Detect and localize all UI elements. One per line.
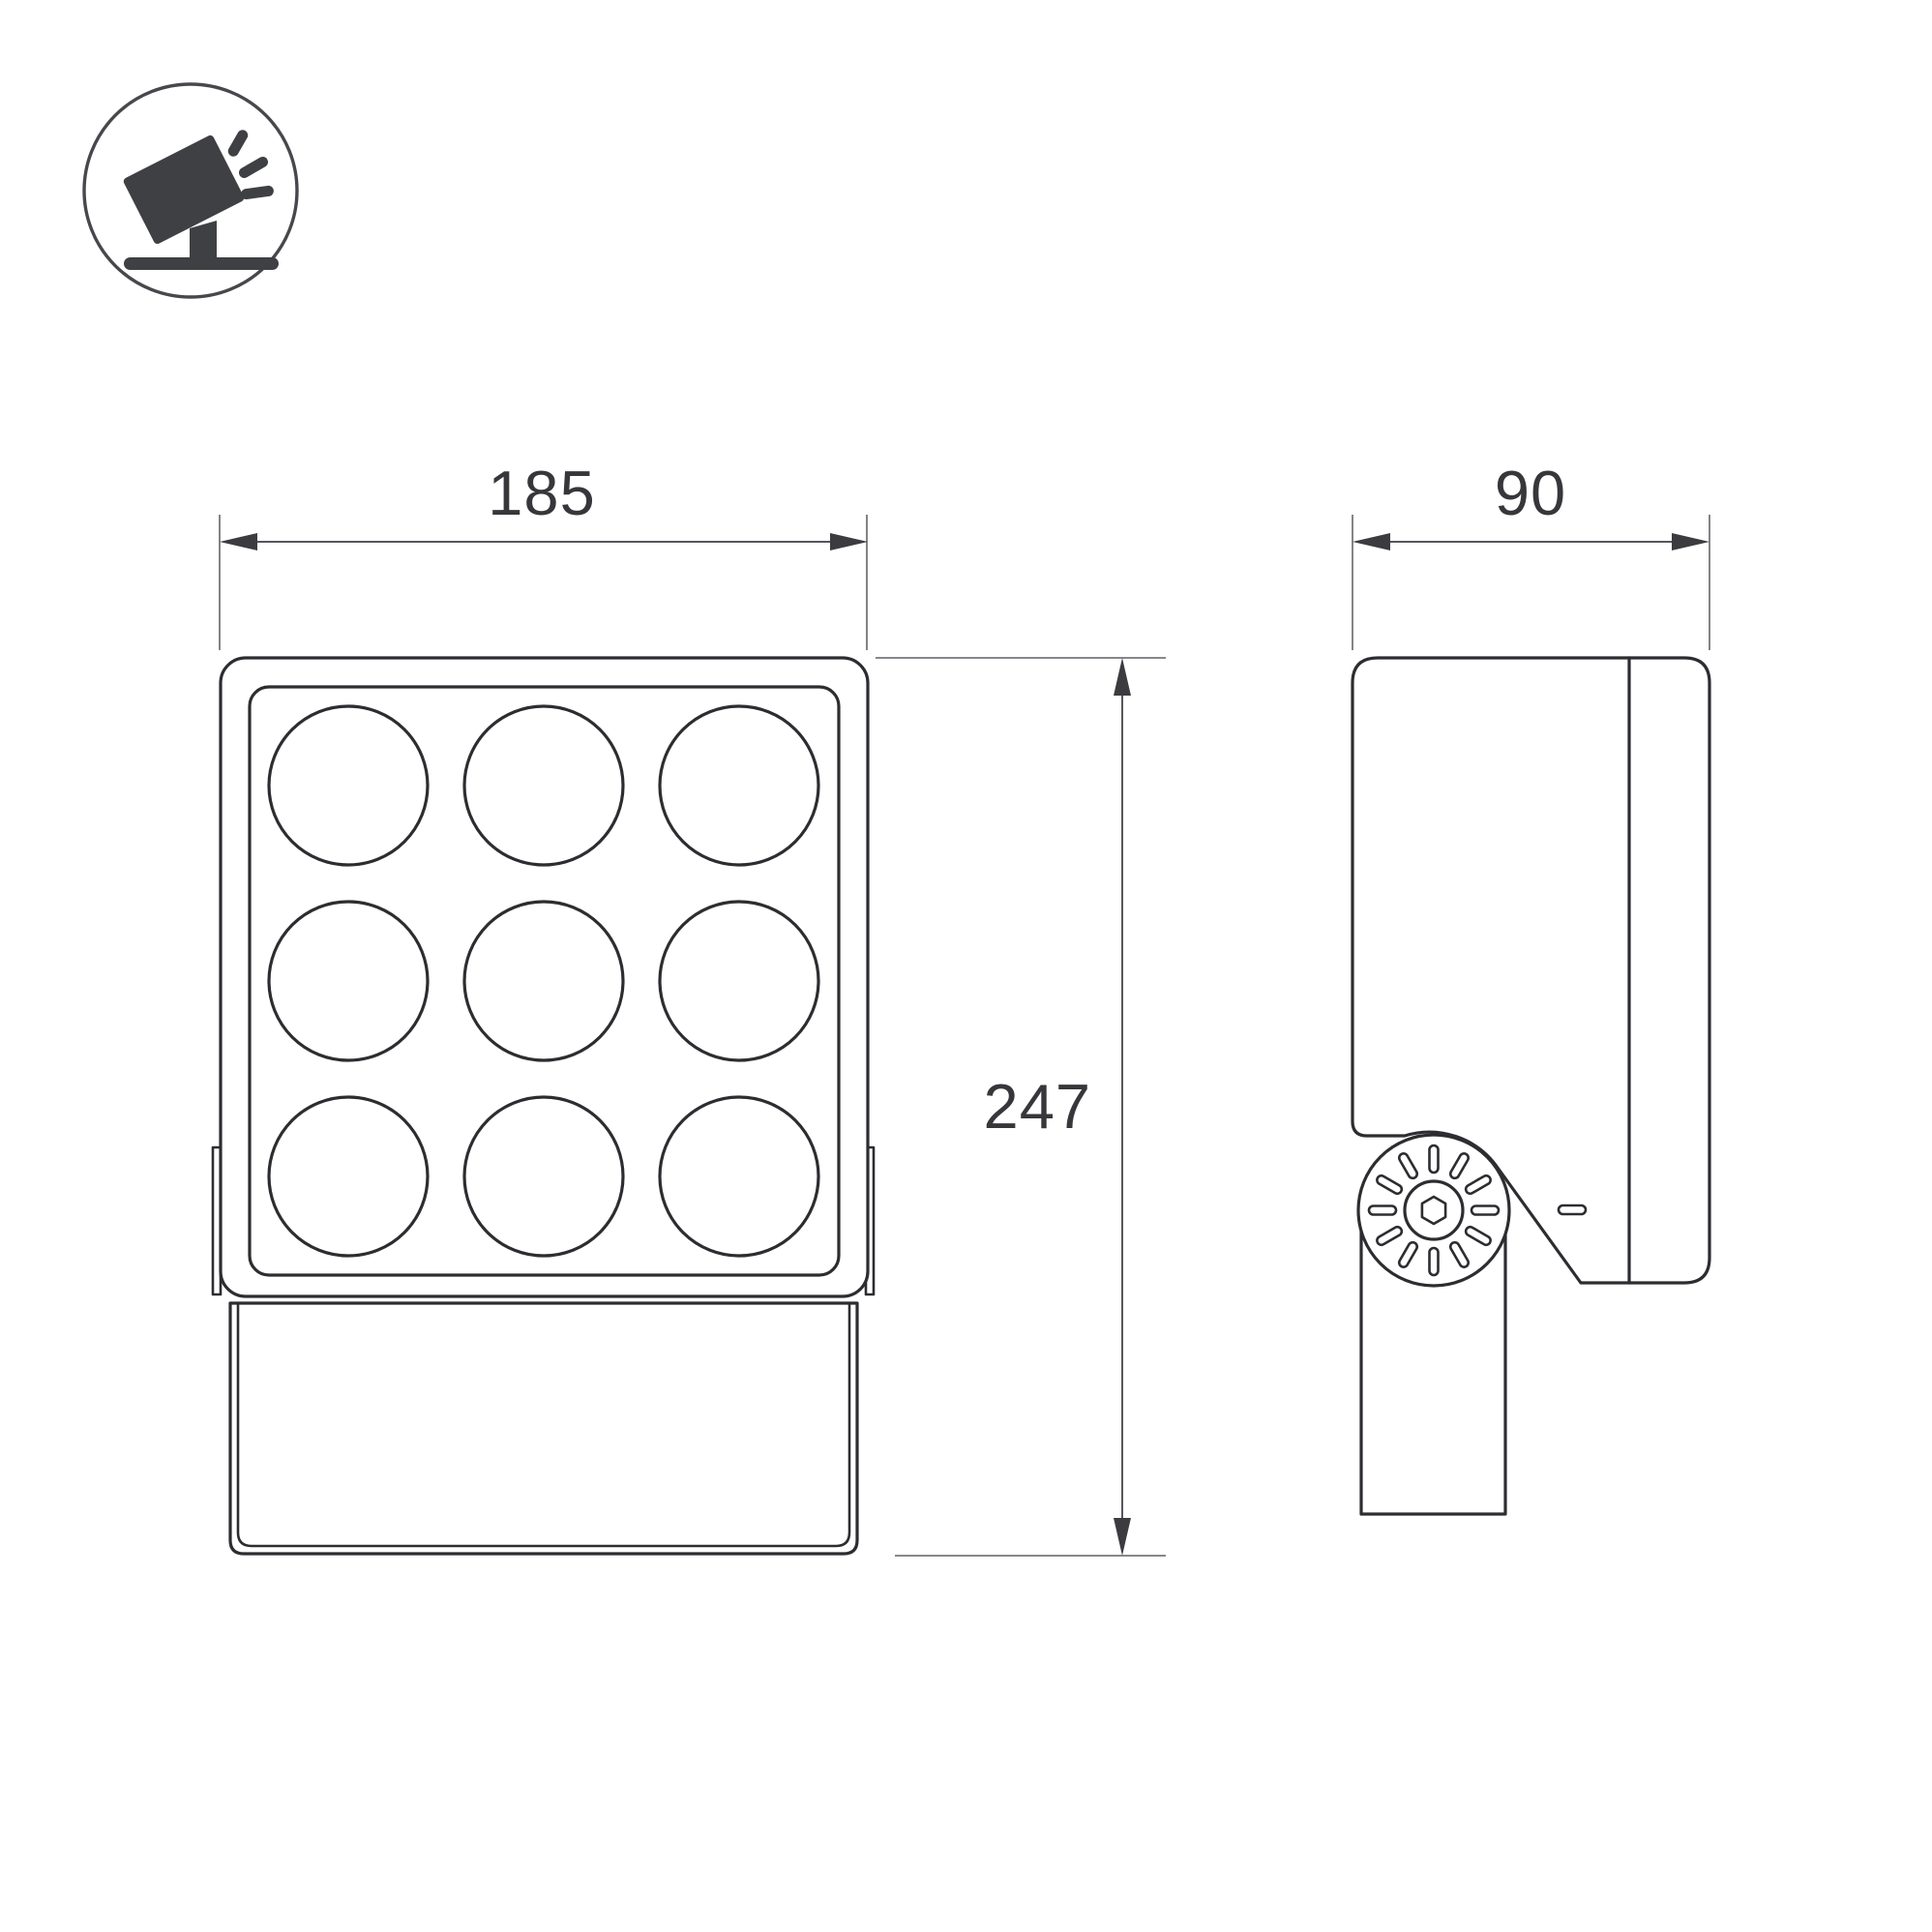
arrow-up-icon [1114,658,1131,696]
dimension-side-width: 90 [1352,458,1709,650]
spotlight-icon [84,84,297,297]
dimension-front-width: 185 [220,458,868,650]
front-width-label: 185 [488,458,595,528]
front-base-outline [230,1303,857,1554]
side-view [1352,658,1709,1514]
hex-socket-screw-icon [1422,1197,1445,1224]
side-width-label: 90 [1495,458,1566,528]
front-lens-panel [250,687,839,1275]
arrow-right-icon [1672,533,1709,550]
side-body-slot-mark [1559,1205,1586,1214]
front-height-label: 247 [984,1071,1091,1142]
side-knuckle [1358,1135,1509,1286]
arrow-right-icon [830,533,868,550]
arrow-left-icon [1352,533,1390,550]
arrow-left-icon [220,533,257,550]
dimension-drawing-canvas: 185 90 247 [0,0,1932,1932]
arrow-down-icon [1114,1518,1131,1556]
dimension-front-height: 247 [876,658,1166,1556]
front-view [213,658,874,1554]
